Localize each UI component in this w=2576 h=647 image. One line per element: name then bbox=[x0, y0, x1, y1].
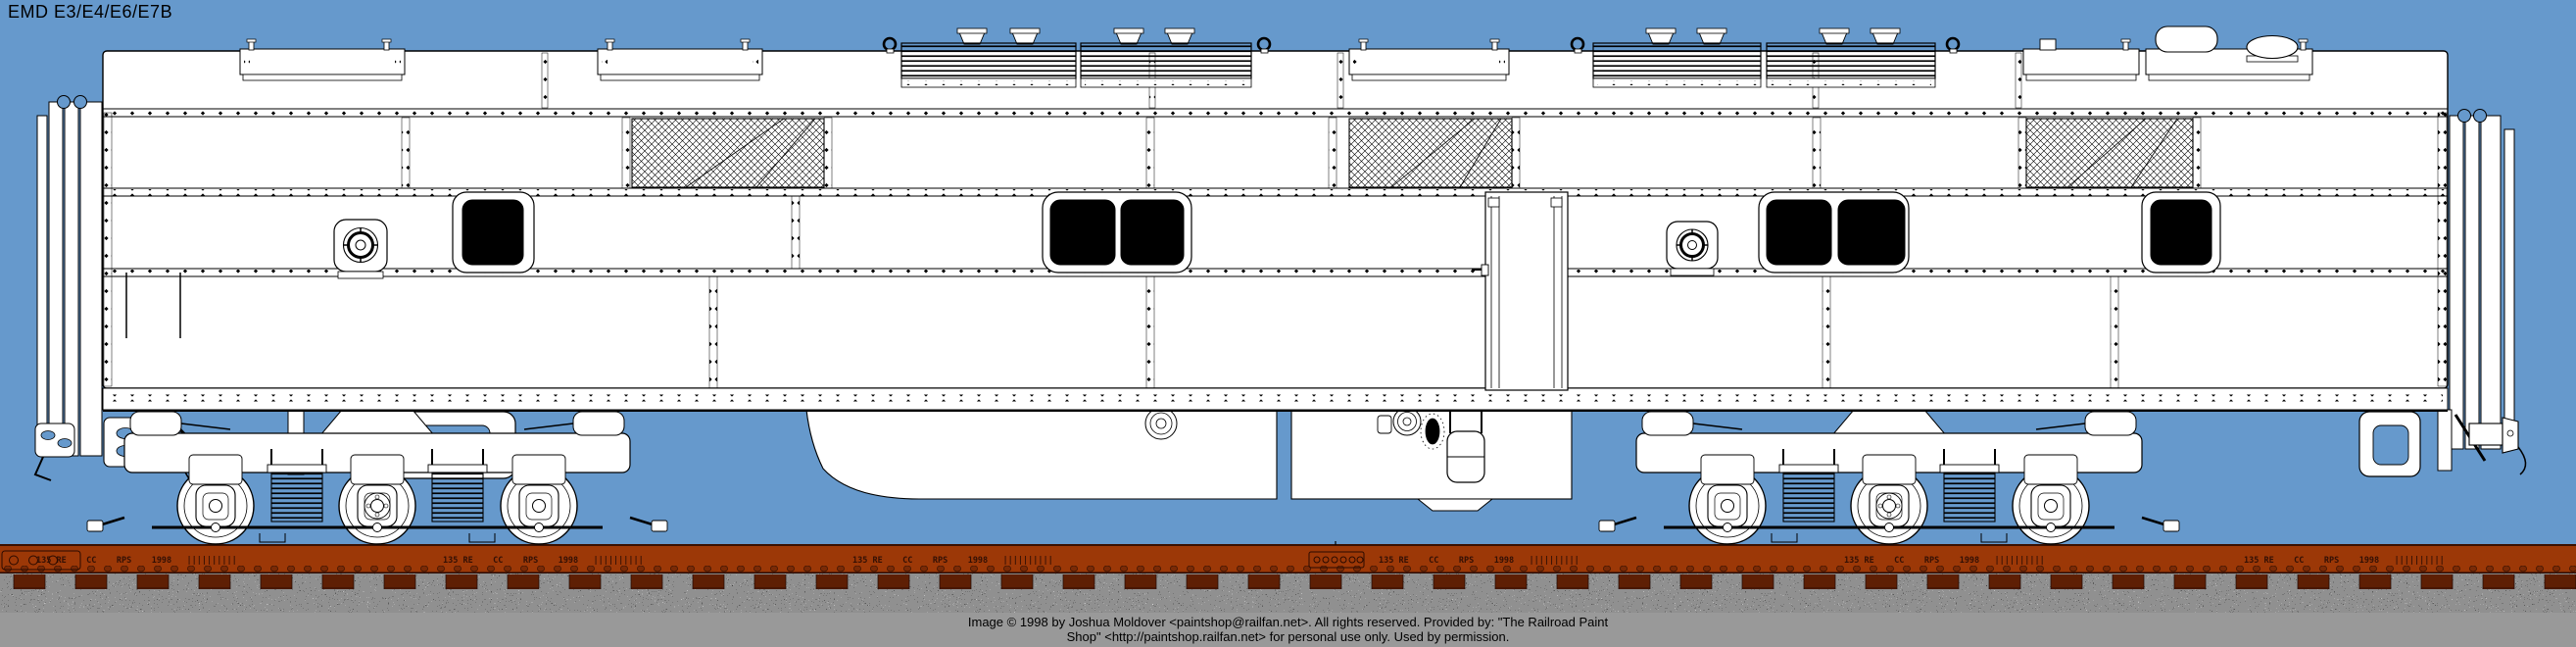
funnel-vent bbox=[1648, 32, 1674, 44]
roof-small-box bbox=[2040, 39, 2056, 50]
funnel-vent bbox=[1167, 32, 1192, 44]
funnel-vent bbox=[1116, 32, 1142, 44]
funnel-vent bbox=[1699, 32, 1725, 44]
pilot-bracket-rear bbox=[2359, 412, 2420, 476]
side-grille bbox=[632, 119, 824, 187]
side-grille bbox=[1349, 119, 1512, 187]
window-glass bbox=[462, 200, 523, 265]
funnel-vent bbox=[1872, 32, 1898, 44]
porthole-fan bbox=[334, 220, 387, 278]
window-single bbox=[453, 192, 534, 273]
window-pair bbox=[1759, 192, 1909, 273]
frame-hanger bbox=[2438, 410, 2452, 471]
rail-marking: 135 RE CC RPS 1998 |||||||||| bbox=[443, 556, 644, 566]
door-hinge bbox=[1551, 198, 1562, 207]
fuel-gauge bbox=[1378, 416, 1391, 433]
rail-base-line bbox=[0, 572, 2576, 574]
funnel-vent bbox=[959, 32, 985, 44]
access-door bbox=[1472, 192, 1568, 390]
locomotive-diagram: 135 RE CC RPS 1998 |||||||||| 135 RE CC … bbox=[0, 0, 2576, 647]
window-glass bbox=[1050, 200, 1115, 265]
rail-marking: 135 RE CC RPS 1998 |||||||||| bbox=[1379, 556, 1580, 566]
funnel-vent bbox=[1012, 32, 1038, 44]
window-single bbox=[2142, 192, 2220, 273]
screenshot-canvas: 135 RE CC RPS 1998 |||||||||| 135 RE CC … bbox=[0, 0, 2576, 647]
funnel-vent bbox=[1822, 32, 1847, 44]
rail-marking: 135 RE CC RPS 1998 |||||||||| bbox=[1844, 556, 2045, 566]
crossties bbox=[0, 574, 2576, 589]
side-grille bbox=[2026, 119, 2193, 187]
window-pair bbox=[1043, 192, 1191, 273]
porthole-fan bbox=[1667, 222, 1718, 275]
window-glass bbox=[1838, 200, 1905, 265]
rail-head-line bbox=[0, 544, 2576, 546]
rail-marking: 135 RE CC RPS 1998 |||||||||| bbox=[852, 556, 1053, 566]
dynamic-brake-housing bbox=[2156, 26, 2217, 52]
window-glass bbox=[1121, 200, 1184, 265]
diaphragm-right bbox=[2450, 110, 2514, 450]
fuel-filler bbox=[1145, 408, 1177, 439]
fuel-filler bbox=[1393, 408, 1421, 435]
door-hinge bbox=[1488, 198, 1499, 207]
fuel-tank-front bbox=[806, 410, 1277, 499]
rail-marking: 135 RE CC RPS 1998 |||||||||| bbox=[36, 556, 237, 566]
diaphragm-left bbox=[35, 96, 102, 481]
copyright-line-1: Image © 1998 by Joshua Moldover <paintsh… bbox=[0, 615, 2576, 629]
copyright-notice: Image © 1998 by Joshua Moldover <paintsh… bbox=[0, 615, 2576, 644]
sill bbox=[103, 388, 2448, 411]
page-title: EMD E3/E4/E6/E7B bbox=[8, 2, 172, 23]
window-glass bbox=[1767, 200, 1831, 265]
window-glass bbox=[2151, 200, 2211, 265]
rail-marking: 135 RE CC RPS 1998 |||||||||| bbox=[2244, 556, 2445, 566]
copyright-line-2: Shop" <http://paintshop.railfan.net> for… bbox=[0, 629, 2576, 644]
exhaust-silencer bbox=[2247, 36, 2298, 63]
